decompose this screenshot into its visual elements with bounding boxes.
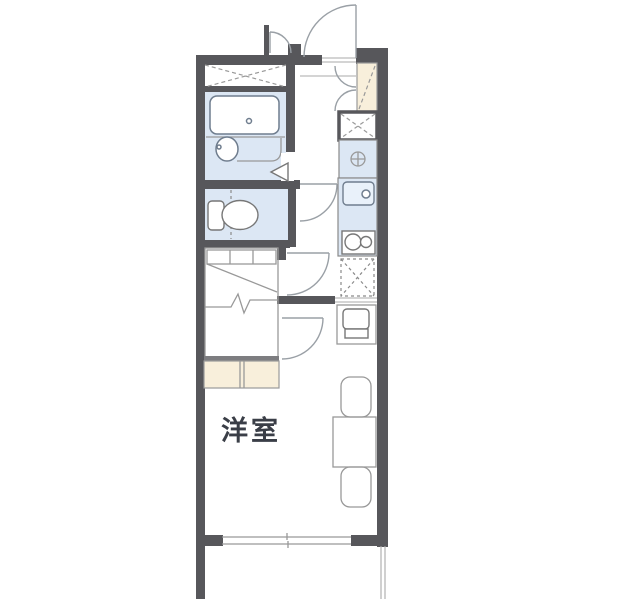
table bbox=[333, 417, 376, 467]
toilet-bowl bbox=[222, 201, 258, 230]
entrance-door-arc bbox=[304, 5, 356, 57]
entrance-threshold bbox=[322, 58, 356, 62]
tv-base bbox=[345, 329, 368, 338]
window-center-tick bbox=[287, 533, 288, 548]
storage-closet bbox=[205, 65, 286, 87]
wall-toilet-right bbox=[288, 180, 296, 247]
chair-bottom bbox=[341, 467, 371, 507]
kitchen bbox=[338, 140, 377, 296]
wall-toilet-top bbox=[196, 180, 300, 189]
wall-left bbox=[196, 55, 205, 599]
storage-door-arc bbox=[270, 32, 291, 53]
shoe-cabinet bbox=[335, 63, 377, 112]
bathtub-drain bbox=[247, 119, 252, 124]
storage-x-mark bbox=[205, 65, 286, 87]
shoe-cabinet-door-arc-bottom bbox=[335, 90, 356, 111]
bed-footboard bbox=[204, 356, 279, 361]
tv bbox=[343, 309, 369, 329]
wall-room-top bbox=[277, 296, 335, 304]
wall-bottom-left bbox=[196, 535, 223, 546]
stove-burner-right bbox=[361, 237, 372, 248]
fridge-x-mark bbox=[341, 259, 374, 296]
chair-top bbox=[341, 377, 371, 417]
stove-burner-left bbox=[345, 234, 361, 250]
bed-diagonal-line bbox=[207, 264, 277, 292]
room-label: 洋室 bbox=[221, 415, 281, 446]
wall-entry-recess-jamb bbox=[264, 25, 269, 57]
floor-plan: 洋室 bbox=[0, 0, 640, 599]
bed-shelf bbox=[204, 361, 279, 388]
bed-headboard bbox=[207, 250, 276, 264]
door-c-arc bbox=[282, 318, 323, 359]
floor-plan-drawing: 洋室 bbox=[0, 0, 640, 599]
furniture bbox=[333, 305, 376, 507]
washbasin-faucet bbox=[217, 145, 221, 149]
wall-top bbox=[196, 55, 322, 65]
bathtub bbox=[210, 96, 279, 134]
wall-toilet-bottom bbox=[196, 240, 290, 248]
balcony-edge bbox=[381, 546, 385, 599]
wall-bottom-right bbox=[351, 535, 388, 546]
wall-bathroom-top bbox=[199, 86, 286, 92]
washer-space bbox=[339, 112, 377, 140]
bed bbox=[204, 248, 279, 388]
bed-headboard-dividers bbox=[230, 250, 253, 264]
door-a-arc bbox=[300, 184, 337, 221]
sink-drain bbox=[362, 190, 370, 198]
bed-break-line bbox=[205, 294, 278, 313]
door-b-arc bbox=[287, 253, 329, 295]
wall-bathroom-right bbox=[286, 64, 295, 152]
room-entry-opening bbox=[335, 298, 377, 302]
